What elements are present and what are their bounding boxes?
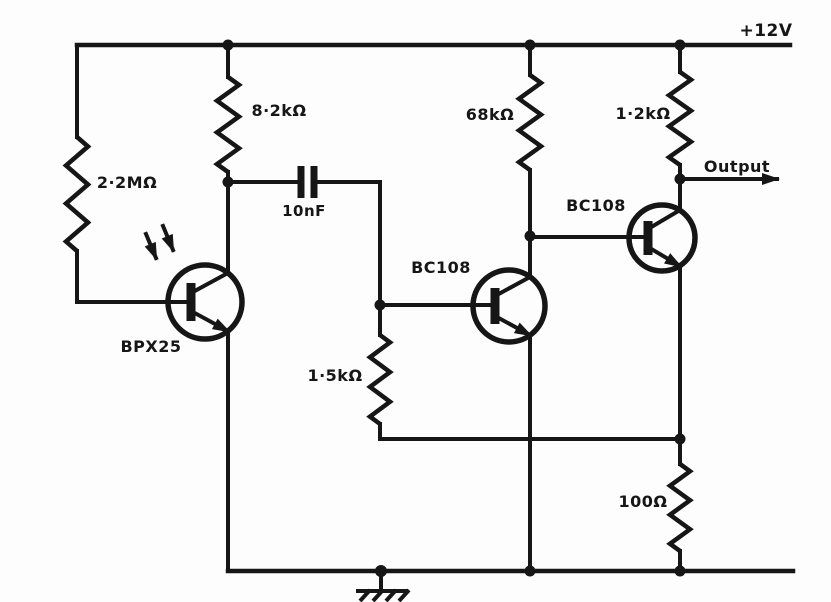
junction-dot	[525, 231, 536, 242]
r3-value-label: 68kΩ	[466, 105, 515, 124]
transistor-q3	[629, 179, 695, 437]
r4-zigzag	[669, 72, 691, 165]
schematic-svg: +12V Output 2·2MΩ 8·2kΩ 68kΩ 1·2kΩ 1·5kΩ…	[0, 0, 831, 602]
junction-dot	[675, 434, 686, 445]
q1-emitter-arrow	[191, 311, 228, 331]
capacitor-c1	[226, 166, 380, 307]
r3-zigzag	[519, 75, 541, 170]
r4-value-label: 1·2kΩ	[615, 104, 670, 123]
q3-emitter-arrow	[648, 247, 680, 266]
r5-zigzag	[370, 335, 390, 424]
junction-dot	[375, 565, 387, 577]
junction-dot	[525, 566, 536, 577]
r6-value-label: 100Ω	[619, 492, 668, 511]
light-arrow-1-icon	[146, 234, 156, 258]
output-label: Output	[704, 157, 770, 176]
circuit-diagram: +12V Output 2·2MΩ 8·2kΩ 68kΩ 1·2kΩ 1·5kΩ…	[0, 0, 831, 602]
r1-value-label: 2·2MΩ	[97, 173, 157, 192]
q2-collector-diag	[495, 277, 530, 296]
q1-part-label: BPX25	[120, 337, 181, 356]
resistor-r3	[519, 45, 541, 238]
q2-emitter-arrow	[495, 316, 530, 335]
resistor-r4	[669, 45, 691, 180]
junction-dot	[375, 300, 386, 311]
r1-zigzag	[66, 137, 88, 251]
junction-dot	[223, 177, 234, 188]
c1-right-wire	[317, 182, 380, 307]
junction-dot	[675, 40, 686, 51]
q2-part-label: BC108	[411, 258, 471, 277]
q1-collector-diag	[191, 273, 228, 293]
transistor-q2	[473, 236, 545, 571]
junction-dot	[223, 40, 234, 51]
junction-dot	[675, 566, 686, 577]
r2-zigzag	[217, 77, 239, 172]
q3-part-label: BC108	[566, 196, 626, 215]
junction-dot	[525, 40, 536, 51]
resistor-r6	[670, 437, 690, 571]
resistor-r5	[370, 305, 680, 439]
supply-label: +12V	[739, 21, 792, 41]
q3-collector-diag	[648, 210, 680, 229]
r6-zigzag	[670, 464, 690, 551]
junction-dot	[675, 174, 686, 185]
r1-to-base-wire	[77, 251, 191, 302]
light-arrow-2-icon	[163, 226, 173, 250]
c1-value-label: 10nF	[282, 202, 326, 220]
r2-value-label: 8·2kΩ	[251, 101, 306, 120]
resistor-r2	[217, 45, 239, 184]
r5-value-label: 1·5kΩ	[307, 366, 362, 385]
phototransistor-q1	[146, 182, 242, 571]
